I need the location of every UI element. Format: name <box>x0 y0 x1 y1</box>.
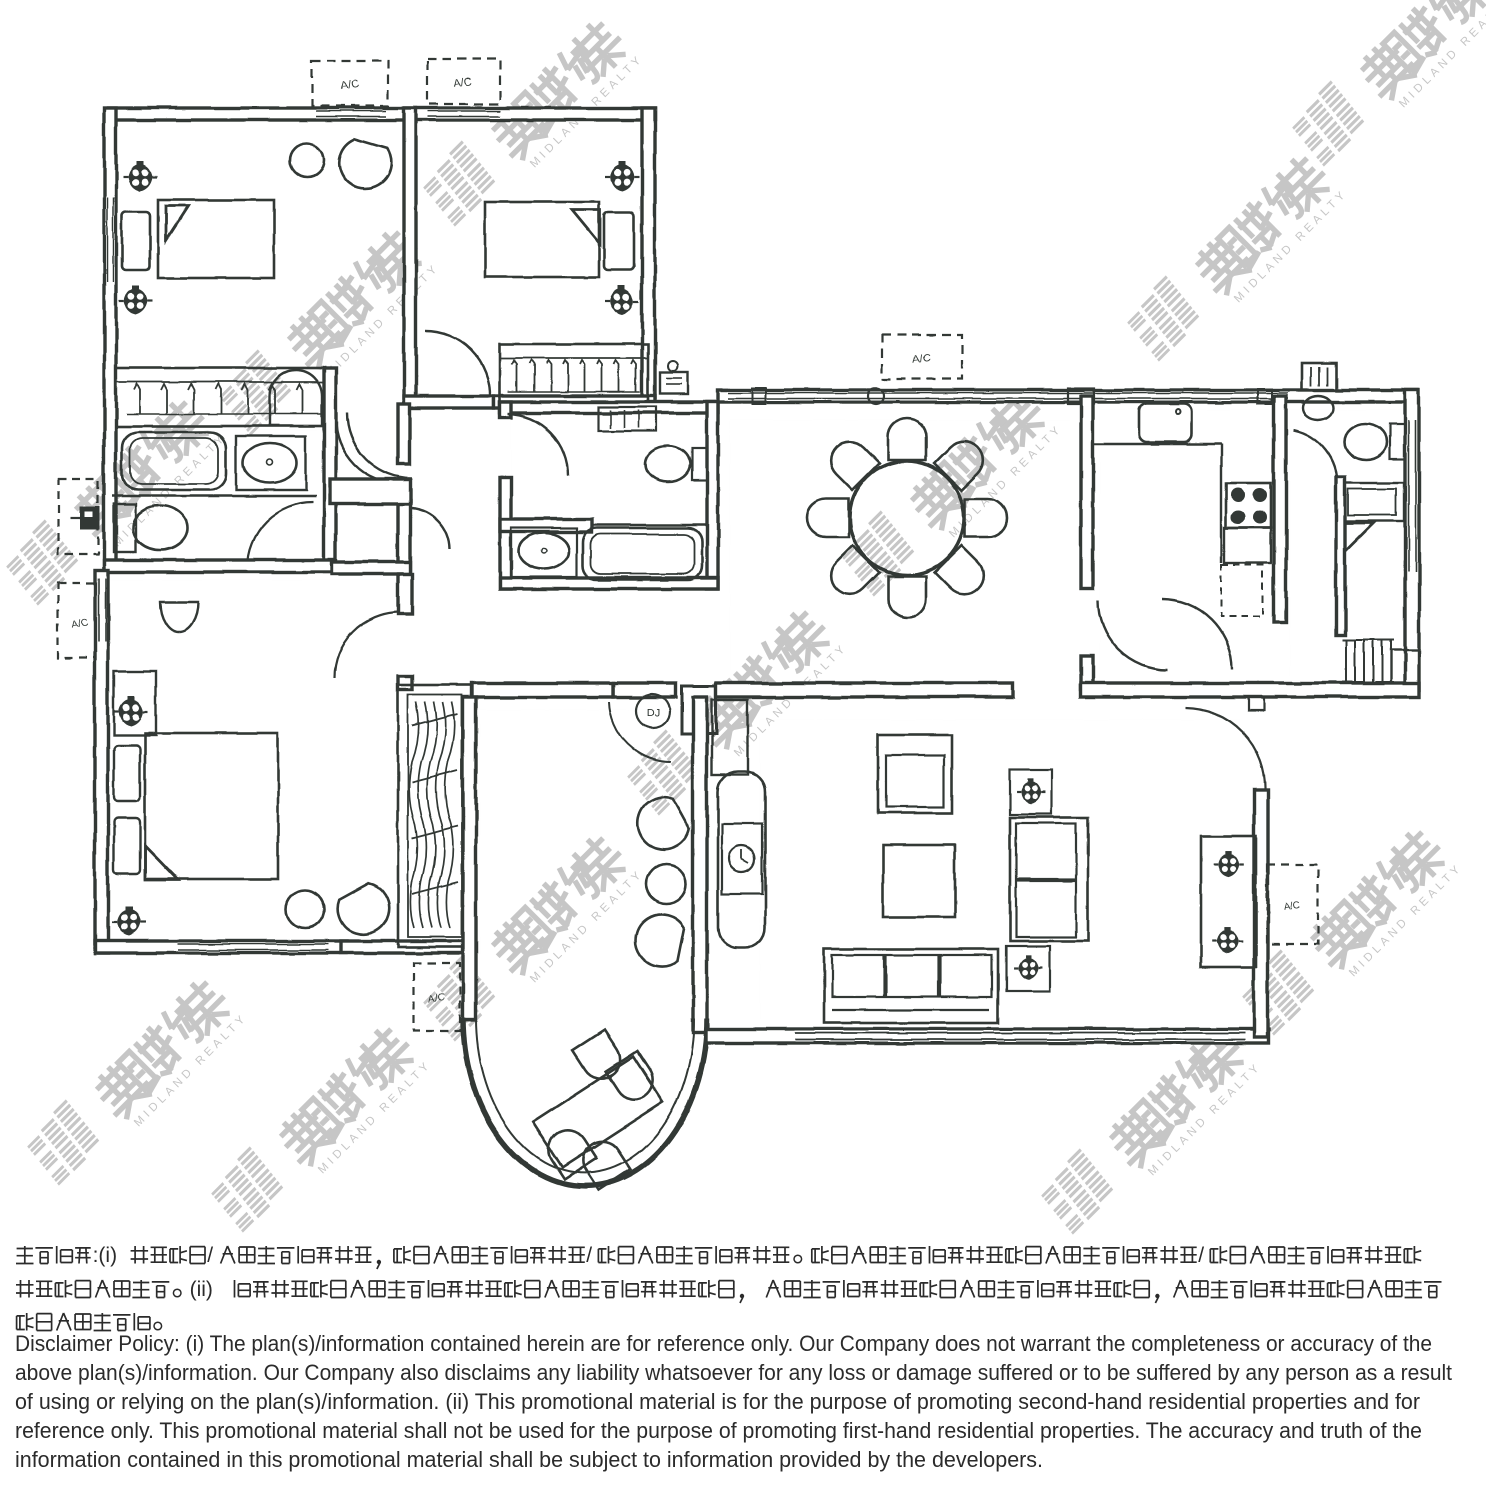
svg-text:/: / <box>1198 1244 1204 1267</box>
svg-text:/: / <box>586 1244 592 1267</box>
svg-text:reference only. This promotion: reference only. This promotional materia… <box>15 1418 1422 1443</box>
svg-text:Disclaimer Policy: (i) The pla: Disclaimer Policy: (i) The plan(s)/infor… <box>15 1331 1432 1356</box>
svg-text:A/C: A/C <box>428 992 446 1005</box>
svg-text:(ii): (ii) <box>190 1278 213 1301</box>
svg-text:above plan(s)/information. Our: above plan(s)/information. Our Company a… <box>15 1360 1452 1385</box>
svg-text:DJ: DJ <box>646 707 659 719</box>
svg-text:A/C: A/C <box>340 78 360 92</box>
svg-text:A/C: A/C <box>71 617 89 630</box>
svg-text:information contained in this: information contained in this promotiona… <box>15 1447 1043 1472</box>
svg-text::(i): :(i) <box>93 1244 118 1267</box>
svg-text:/: / <box>207 1244 213 1267</box>
svg-text:A/C: A/C <box>912 352 932 366</box>
svg-text:A/C: A/C <box>1283 899 1301 912</box>
svg-text:of using or relying on the pla: of using or relying on the plan(s)/infor… <box>15 1389 1420 1414</box>
svg-text:A/C: A/C <box>453 76 473 90</box>
